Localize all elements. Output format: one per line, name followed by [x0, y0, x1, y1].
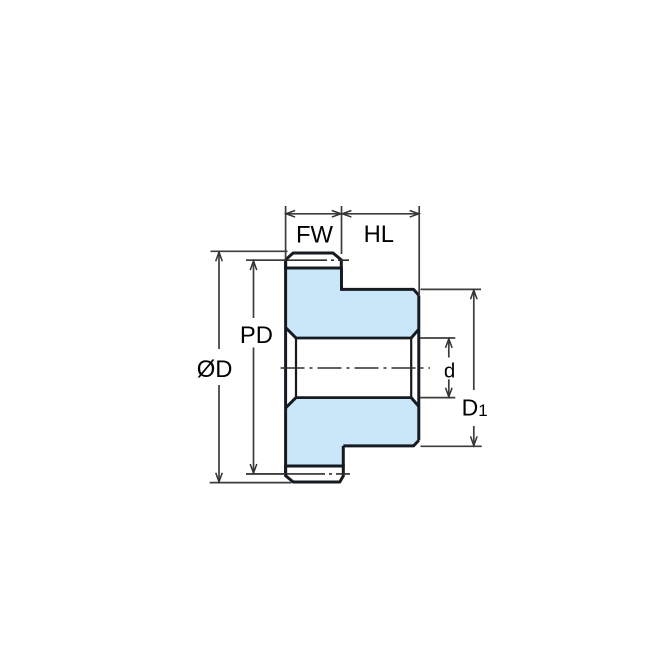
svg-text:D1: D1	[462, 395, 488, 421]
svg-text:ØD: ØD	[197, 356, 233, 383]
svg-text:PD: PD	[240, 322, 273, 349]
svg-text:d: d	[444, 360, 455, 383]
svg-text:FW: FW	[296, 221, 334, 248]
svg-text:HL: HL	[364, 221, 394, 248]
